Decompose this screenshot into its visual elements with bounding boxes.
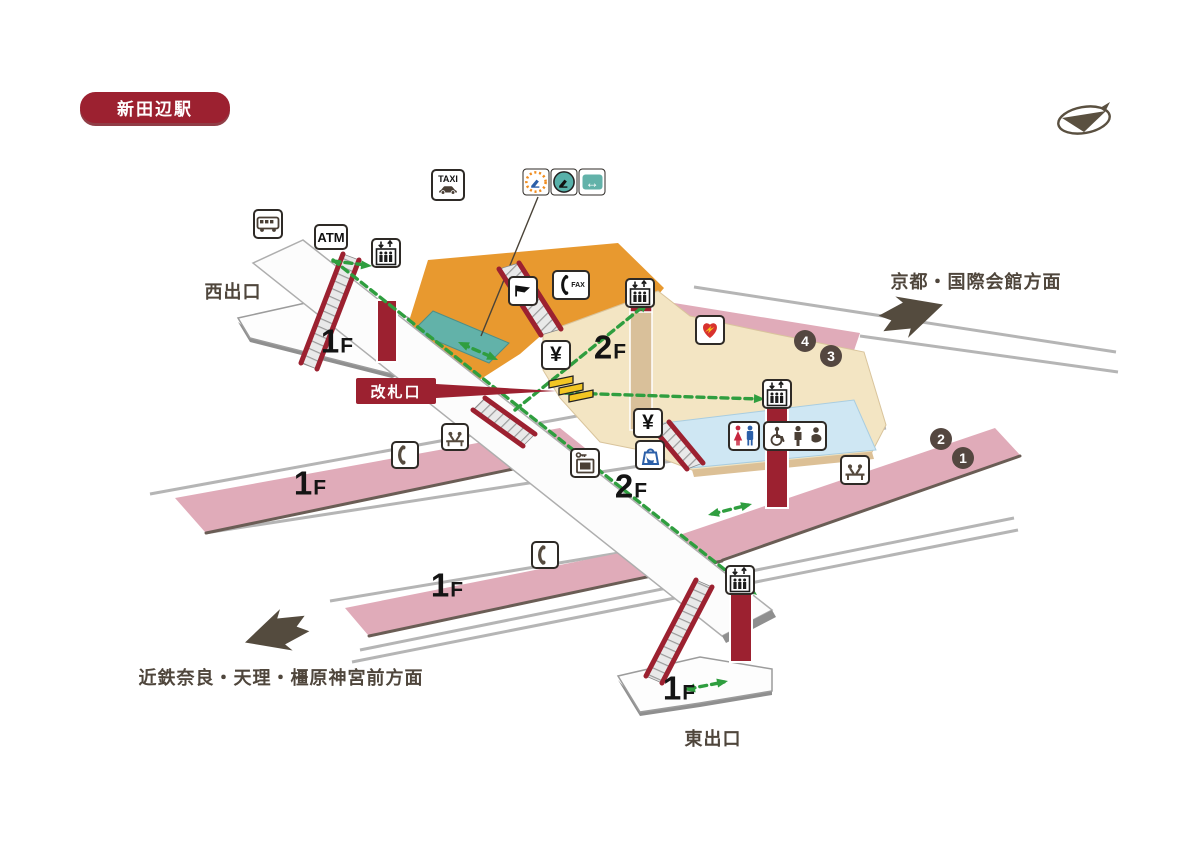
direction-arrow-nara — [239, 603, 314, 663]
fare-adjustment-icon: ↔ — [579, 169, 606, 196]
platform-badge-4: 4 — [794, 330, 816, 352]
waiting-bench-icon-left — [441, 423, 469, 451]
station-title: 新田辺駅 — [80, 92, 230, 123]
east-exit-label: 東出口 — [685, 725, 742, 751]
multipurpose-restroom-icon — [763, 421, 827, 451]
elevator-icon-west — [371, 238, 401, 268]
ticket-machine-icon-upper: ¥ — [541, 340, 571, 370]
floor-label-west-1f: 1F — [321, 325, 353, 358]
bus-icon — [253, 209, 283, 239]
direction-nara-label: 近鉄奈良・天理・橿原神宮前方面 — [139, 664, 424, 690]
floor-label-south-platform-1f: 1F — [431, 569, 463, 602]
elevator-icon-right — [762, 379, 792, 409]
shop-icon — [635, 440, 665, 470]
station-office-icon — [508, 276, 538, 306]
platform-badge-2: 2 — [930, 428, 952, 450]
west-exit-label: 西出口 — [205, 278, 262, 304]
public-phone-icon-south — [531, 541, 559, 569]
gate-badge: 改札口 — [356, 378, 436, 404]
map-graphics — [0, 0, 1200, 848]
waiting-bench-icon-right — [840, 455, 870, 485]
coin-locker-icon — [570, 448, 600, 478]
platform-badge-3: 3 — [820, 345, 842, 367]
restroom-icon — [728, 421, 760, 451]
compass-icon — [1056, 102, 1112, 137]
taxi-icon: TAXI — [431, 169, 465, 201]
direction-kyoto-label: 京都・国際会館方面 — [891, 268, 1062, 294]
elevator-icon-center — [625, 278, 655, 308]
elevator-icon-east — [725, 565, 755, 595]
phone-fax-icon: FAX — [552, 270, 590, 300]
floor-label-west-platform-1f: 1F — [294, 467, 326, 500]
limited-express-ticket-machine-icon — [523, 169, 550, 196]
platform-badge-1: 1 — [952, 447, 974, 469]
floor-label-east-1f: 1F — [663, 672, 695, 705]
aed-icon — [695, 315, 725, 345]
ticket-machine-icon-lower: ¥ — [633, 408, 663, 438]
floor-label-concourse-2f: 2F — [594, 331, 626, 364]
station-map: 新田辺駅 西出口 東出口 京都・国際会館方面 近鉄奈良・天理・橿原神宮前方面 改… — [0, 0, 1200, 848]
ticket-window-seat-icon — [551, 169, 578, 196]
public-phone-icon-left — [391, 441, 419, 469]
atm-icon: ATM — [314, 224, 348, 250]
floor-label-bridge-2f: 2F — [615, 470, 647, 503]
